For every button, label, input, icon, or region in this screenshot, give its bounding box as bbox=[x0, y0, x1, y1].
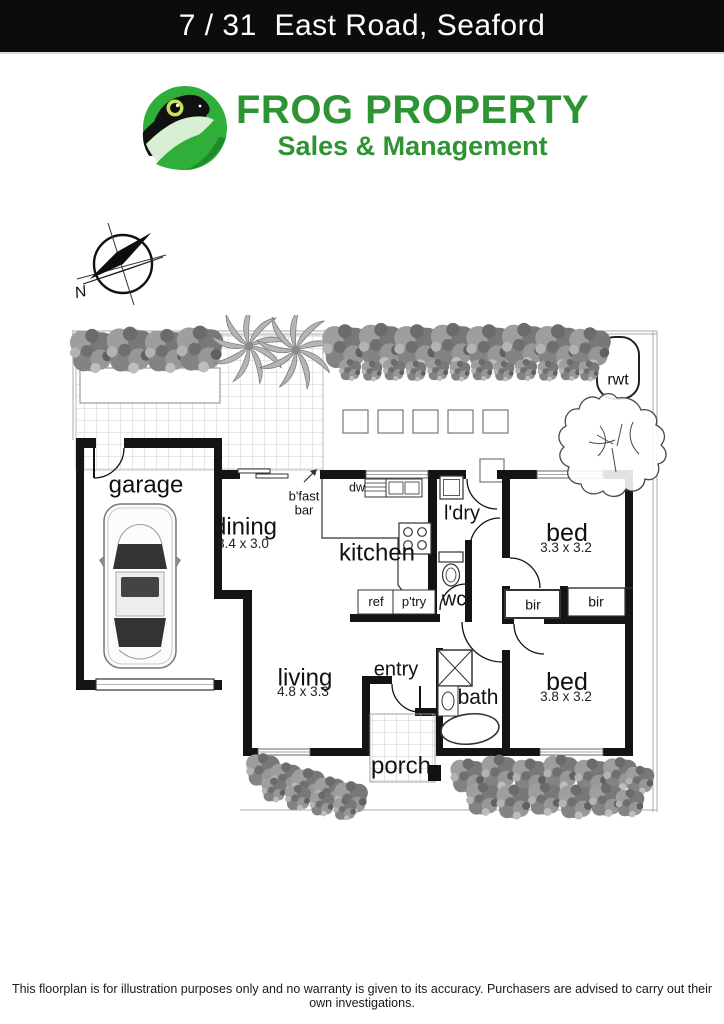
frog-logo-icon bbox=[142, 82, 228, 174]
footer-disclaimer: This floorplan is for illustration purpo… bbox=[0, 982, 724, 1010]
rainwater-tank-label: rwt bbox=[607, 373, 628, 390]
dining-dims: 3.4 x 3.0 bbox=[217, 537, 269, 551]
logo-line1: FROG PROPERTY bbox=[236, 90, 589, 130]
garage-label: garage bbox=[109, 472, 184, 497]
dishwasher-label: dw bbox=[349, 481, 365, 494]
bath-label: bath bbox=[458, 687, 499, 709]
floorplan-svg bbox=[60, 315, 670, 820]
entry-label: entry bbox=[374, 660, 418, 681]
robe-boxes bbox=[505, 588, 633, 618]
robe-right-label: bir bbox=[588, 595, 604, 610]
car-icon bbox=[99, 504, 181, 668]
page: 7 / 31 East Road, Seaford FROG PROPERTY … bbox=[0, 0, 724, 1024]
compass-icon: N bbox=[73, 221, 169, 309]
living-dims: 4.8 x 3.3 bbox=[277, 685, 329, 699]
pantry-label: p'try bbox=[402, 595, 426, 609]
bed-front-dims: 3.3 x 3.2 bbox=[540, 541, 592, 555]
agency-logo: FROG PROPERTY Sales & Management bbox=[142, 82, 589, 174]
laundry-label: l'dry bbox=[444, 504, 480, 525]
laundry-fixtures bbox=[440, 476, 463, 499]
entry-path-arrow bbox=[304, 469, 317, 482]
fridge-label: ref bbox=[368, 595, 383, 609]
compass-north-label: N bbox=[73, 283, 89, 302]
logo-line2: Sales & Management bbox=[236, 133, 589, 160]
porch-label: porch bbox=[371, 753, 431, 778]
wc-label: wc bbox=[442, 590, 466, 611]
dishwasher-icon bbox=[365, 479, 386, 497]
kitchen-label: kitchen bbox=[339, 540, 415, 565]
logo-text: FROG PROPERTY Sales & Management bbox=[236, 90, 589, 160]
page-title: 7 / 31 East Road, Seaford bbox=[179, 9, 546, 43]
bfast-bar-label: b'fast bar bbox=[289, 489, 320, 516]
large-tree-icon bbox=[559, 394, 666, 497]
header-bar: 7 / 31 East Road, Seaford bbox=[0, 0, 724, 54]
robe-left-label: bir bbox=[525, 598, 541, 613]
bed-rear-dims: 3.8 x 3.2 bbox=[540, 690, 592, 704]
toilet-icon bbox=[439, 552, 463, 586]
